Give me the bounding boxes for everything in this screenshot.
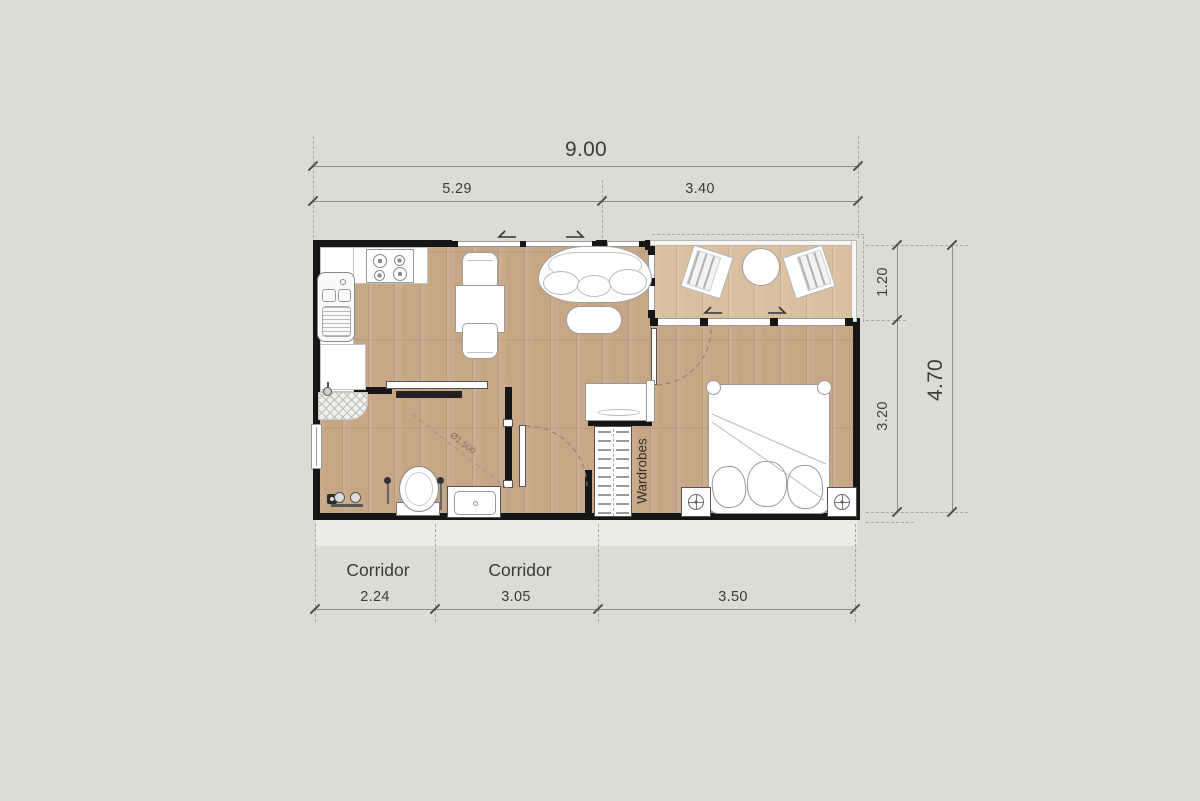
- sink-bowl: [322, 289, 336, 302]
- door-jamb: [503, 480, 513, 488]
- sliding-window-arrow: [566, 231, 583, 237]
- window-mullion: [648, 310, 655, 318]
- shower-valve-handle: [334, 492, 345, 503]
- sink-faucet: [340, 279, 346, 285]
- extension-line: [602, 180, 603, 238]
- window-mullion: [639, 241, 645, 247]
- wardrobe-rail: [613, 429, 614, 516]
- toilet-brush: [384, 477, 391, 484]
- dim-top-overall: 9.00: [565, 138, 607, 162]
- window-mullion: [650, 318, 658, 326]
- vanity: [447, 486, 501, 518]
- chair-slats: [686, 250, 721, 292]
- wall-top-left: [313, 240, 452, 247]
- terrace-table: [742, 248, 780, 286]
- window-terrace-bedroom: [650, 318, 853, 326]
- dimension-line-top-segments: [313, 201, 858, 202]
- partition-bathroom-right: [505, 387, 512, 487]
- exterior-pad: [316, 520, 857, 546]
- sofa-cushion: [577, 275, 611, 297]
- window-mullion: [700, 318, 708, 326]
- floor-plan-canvas: Wardrobes Ø1.500: [0, 0, 1200, 801]
- window-mullion: [452, 241, 458, 247]
- extension-line: [313, 136, 314, 238]
- desk-dish: [598, 409, 640, 416]
- bathroom-fixture-stem: [440, 484, 442, 510]
- dimension-line-right-segments: [897, 245, 898, 512]
- bed-blanket-corner: [817, 380, 832, 395]
- shower-valve-handle: [350, 492, 361, 503]
- pillow: [786, 464, 825, 510]
- vanity-sink: [454, 491, 496, 515]
- window-mullion: [845, 318, 853, 326]
- dining-chair-bottom: [462, 323, 498, 359]
- sliding-window-arrow: [499, 231, 516, 237]
- terrace-dashed-outline-top: [652, 234, 864, 235]
- extension-line: [866, 522, 914, 523]
- sofa-cushion: [543, 271, 579, 295]
- sink-drainer: [322, 306, 351, 337]
- dimension-line-bottom: [315, 609, 855, 610]
- stove-burner: [393, 267, 407, 281]
- wardrobe-hangers: [598, 431, 611, 514]
- nightstand-left: [681, 487, 711, 517]
- wardrobe-hangers: [616, 431, 629, 514]
- toilet-bowl: [399, 466, 439, 512]
- shower-mat: [318, 392, 368, 420]
- nightstand-right: [827, 487, 857, 517]
- dim-bottom-seg2: 3.05: [501, 589, 530, 605]
- bedroom-desk: [585, 383, 652, 421]
- window-mullion: [648, 247, 655, 255]
- window-bathroom-left: [311, 424, 322, 469]
- window-mullion: [520, 241, 526, 247]
- bedroom-door-leaf: [651, 328, 657, 385]
- corridor-label-left: Corridor: [346, 560, 409, 581]
- desk-side-frame: [646, 380, 655, 422]
- wardrobes-label: Wardrobes: [635, 438, 650, 504]
- bathroom-door-leaf: [519, 425, 526, 487]
- terrace-dashed-outline-right: [863, 236, 864, 322]
- stove-burner: [374, 270, 385, 281]
- dimension-line-right-overall: [952, 245, 953, 512]
- dimension-line-top-overall: [313, 166, 858, 167]
- corridor-label-mid: Corridor: [488, 560, 551, 581]
- kitchen-sink: [317, 272, 355, 342]
- sink-bowl: [338, 289, 351, 302]
- partition-bedroom-left: [585, 470, 592, 520]
- door-jamb: [503, 419, 513, 427]
- dim-top-seg1: 5.29: [442, 181, 471, 197]
- toilet-brush-stem: [387, 484, 389, 504]
- terrace-wall-right: [851, 240, 857, 322]
- toilet-bowl-inner: [405, 472, 433, 506]
- chair-seat-line: [467, 260, 493, 261]
- coffee-table: [566, 306, 622, 334]
- dim-bottom-seg3: 3.50: [718, 589, 747, 605]
- window-frame-line: [316, 427, 317, 466]
- dim-right-seg1: 1.20: [875, 267, 891, 296]
- chair-seat-line: [467, 352, 493, 353]
- stove-burner: [373, 254, 387, 268]
- sliding-door-track: [396, 391, 462, 398]
- extension-line: [858, 136, 859, 238]
- nightstand-lamp: [834, 494, 850, 510]
- dim-right-seg2: 3.20: [875, 401, 891, 430]
- dim-top-seg2: 3.40: [685, 181, 714, 197]
- bathroom-fixture: [437, 477, 444, 484]
- stove: [366, 249, 414, 283]
- dining-chair-top: [462, 252, 498, 288]
- stove-burner: [394, 255, 405, 266]
- shower-head: [323, 387, 332, 396]
- dim-bottom-seg1: 2.24: [360, 589, 389, 605]
- wardrobe: [594, 426, 632, 517]
- terrace-wall-top: [650, 240, 857, 246]
- sofa: [538, 246, 652, 303]
- dim-right-overall: 4.70: [924, 359, 948, 401]
- vanity-faucet: [473, 501, 478, 506]
- extension-line: [866, 320, 906, 321]
- bed-blanket-corner: [706, 380, 721, 395]
- shower-valve-bar: [331, 504, 363, 507]
- window-mullion: [770, 318, 778, 326]
- sliding-door-panel: [386, 381, 488, 389]
- sofa-cushion: [609, 269, 647, 295]
- nightstand-lamp: [688, 494, 704, 510]
